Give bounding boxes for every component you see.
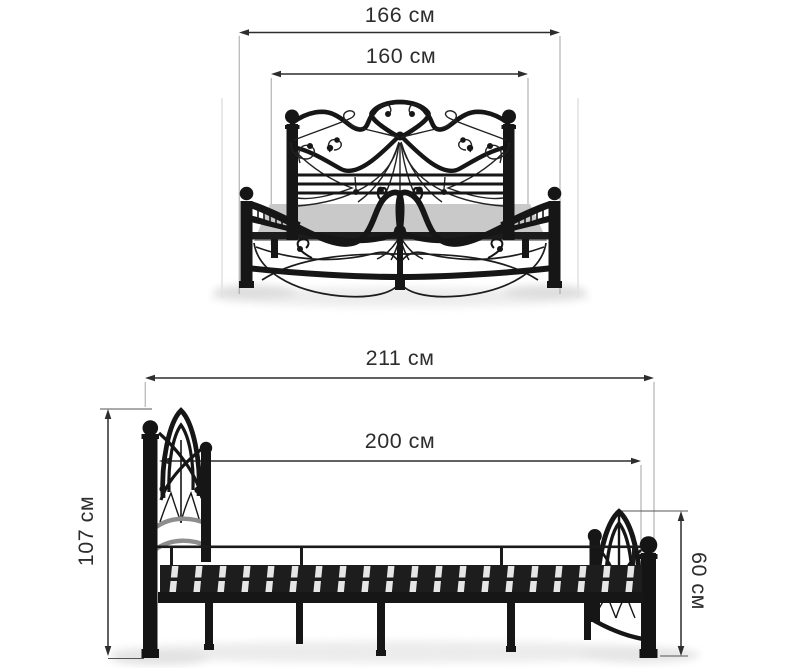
svg-text:211 см: 211 см <box>366 346 435 370</box>
svg-text:166 см: 166 см <box>365 3 435 27</box>
svg-text:160 см: 160 см <box>366 44 436 68</box>
svg-text:107 см: 107 см <box>74 496 98 566</box>
svg-text:60 см: 60 см <box>687 552 711 610</box>
svg-text:200 см: 200 см <box>365 429 435 453</box>
